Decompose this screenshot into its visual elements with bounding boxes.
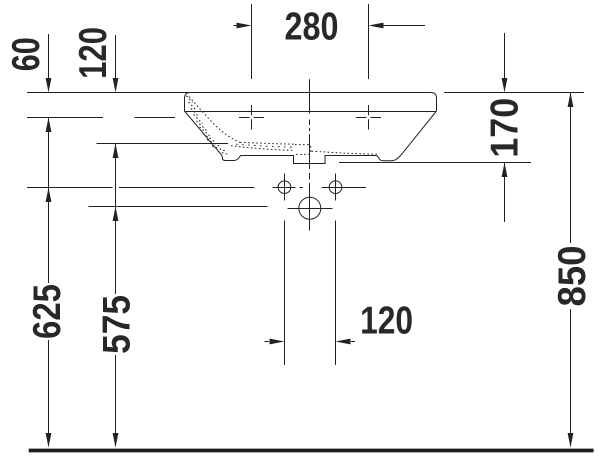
svg-text:60: 60: [5, 37, 48, 71]
svg-text:120: 120: [72, 27, 115, 79]
svg-text:120: 120: [360, 300, 413, 343]
svg-text:280: 280: [285, 6, 339, 49]
svg-text:170: 170: [484, 98, 527, 158]
svg-text:625: 625: [26, 284, 69, 339]
svg-text:850: 850: [551, 246, 594, 307]
svg-text:575: 575: [95, 295, 138, 354]
